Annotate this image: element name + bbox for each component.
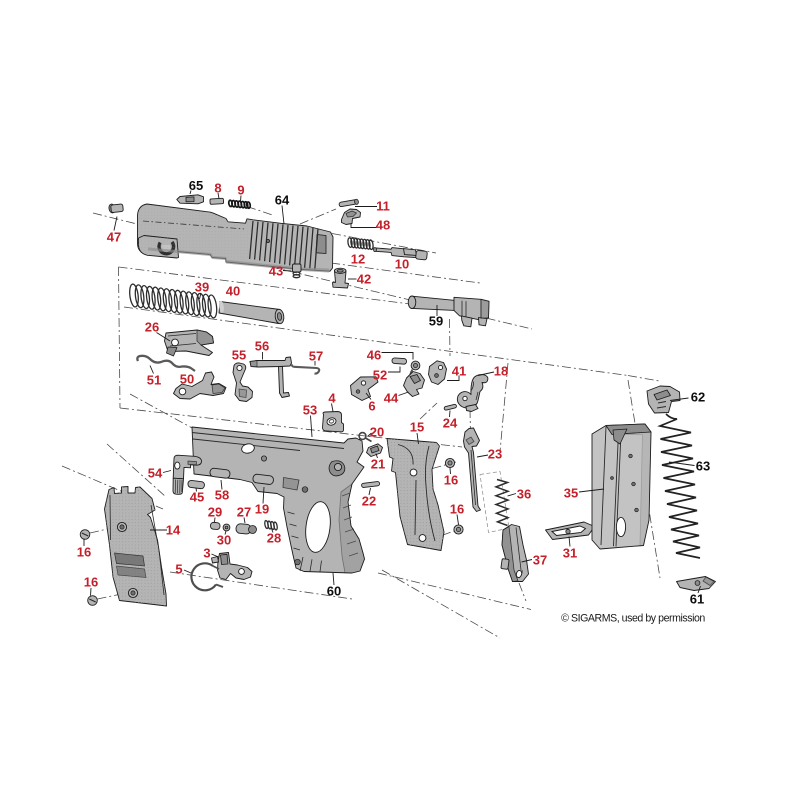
svg-text:12: 12 — [351, 252, 365, 267]
svg-text:54: 54 — [148, 466, 163, 481]
svg-text:60: 60 — [327, 584, 341, 599]
svg-text:35: 35 — [564, 486, 578, 501]
svg-text:24: 24 — [443, 416, 458, 431]
svg-text:65: 65 — [189, 178, 203, 193]
svg-text:4: 4 — [328, 391, 336, 406]
svg-text:44: 44 — [384, 391, 399, 406]
svg-text:9: 9 — [237, 183, 244, 198]
svg-text:23: 23 — [488, 447, 502, 462]
svg-text:62: 62 — [691, 390, 705, 405]
svg-text:53: 53 — [303, 403, 317, 418]
svg-text:55: 55 — [232, 348, 246, 363]
svg-text:27: 27 — [237, 505, 251, 520]
svg-text:59: 59 — [429, 314, 443, 329]
svg-text:19: 19 — [255, 502, 269, 517]
svg-text:20: 20 — [370, 425, 384, 440]
svg-text:58: 58 — [215, 488, 229, 503]
svg-text:16: 16 — [77, 545, 91, 560]
svg-text:21: 21 — [371, 457, 385, 472]
svg-text:16: 16 — [84, 575, 98, 590]
svg-text:3: 3 — [203, 546, 210, 561]
svg-text:14: 14 — [166, 523, 181, 538]
svg-text:15: 15 — [410, 420, 424, 435]
svg-text:46: 46 — [367, 348, 381, 363]
svg-text:11: 11 — [376, 199, 390, 214]
svg-text:22: 22 — [362, 494, 376, 509]
svg-text:30: 30 — [217, 533, 231, 548]
svg-text:48: 48 — [376, 218, 390, 233]
svg-text:56: 56 — [255, 339, 269, 354]
svg-text:47: 47 — [107, 230, 121, 245]
svg-text:63: 63 — [696, 459, 710, 474]
svg-text:16: 16 — [450, 502, 464, 517]
svg-text:57: 57 — [309, 349, 323, 364]
svg-text:45: 45 — [190, 490, 204, 505]
svg-text:52: 52 — [373, 368, 387, 383]
svg-text:39: 39 — [195, 280, 209, 295]
svg-text:10: 10 — [395, 257, 409, 272]
svg-text:31: 31 — [563, 546, 577, 561]
svg-text:61: 61 — [690, 592, 704, 607]
svg-text:41: 41 — [452, 364, 466, 379]
svg-text:37: 37 — [533, 553, 547, 568]
svg-text:6: 6 — [368, 399, 375, 414]
svg-text:51: 51 — [147, 373, 161, 388]
svg-text:8: 8 — [214, 181, 221, 196]
svg-text:5: 5 — [175, 562, 182, 577]
svg-text:28: 28 — [267, 531, 281, 546]
svg-text:36: 36 — [517, 487, 531, 502]
svg-text:© SIGARMS, used by permission: © SIGARMS, used by permission — [561, 613, 705, 625]
svg-text:42: 42 — [357, 272, 371, 287]
svg-text:26: 26 — [145, 320, 159, 335]
svg-text:40: 40 — [226, 284, 240, 299]
svg-text:50: 50 — [180, 372, 194, 387]
svg-text:29: 29 — [208, 505, 222, 520]
svg-text:43: 43 — [269, 264, 283, 279]
svg-text:64: 64 — [275, 193, 290, 208]
svg-text:18: 18 — [494, 364, 508, 379]
svg-text:16: 16 — [444, 473, 458, 488]
